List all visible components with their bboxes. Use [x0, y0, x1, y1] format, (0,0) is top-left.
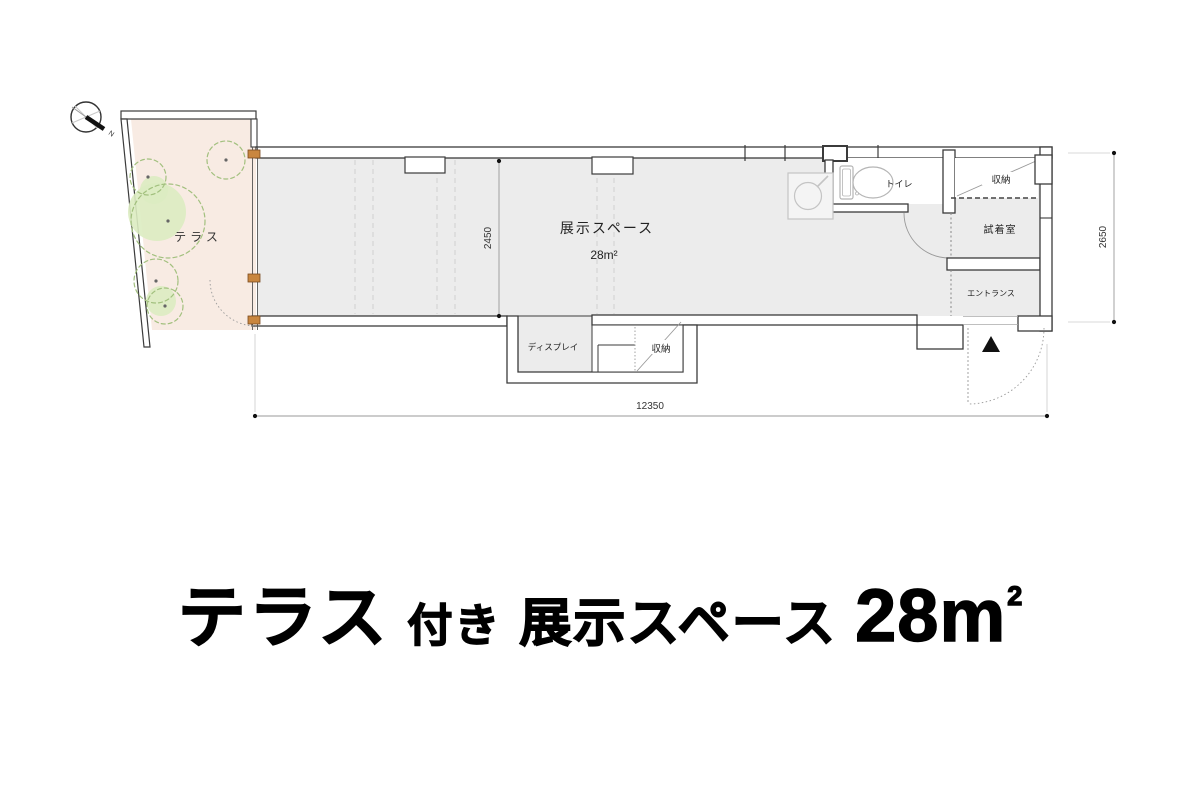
- dimension-right-depth-value: 2650: [1098, 225, 1109, 248]
- right-wall-post: [1035, 155, 1052, 184]
- terrace-top-wall: [121, 111, 256, 119]
- entrance-corner-wall: [1018, 316, 1052, 331]
- caption-title: テラス 付き 展示スペース 28m2: [0, 562, 1200, 661]
- terrace-label: テラス: [174, 230, 222, 244]
- tree-trunk-dot: [166, 219, 169, 222]
- display-label: ディスプレイ: [528, 342, 578, 352]
- entry-step: [917, 325, 963, 349]
- dimension-width-value: 12350: [636, 401, 664, 412]
- tree-trunk-dot: [154, 279, 157, 282]
- wood-post: [248, 274, 260, 282]
- entrance-arrow-icon: [982, 336, 1000, 352]
- floor-plan-page: テラス トイレ: [0, 0, 1200, 800]
- sink-icon: [788, 173, 833, 219]
- dimension-depth-value: 2450: [483, 226, 494, 249]
- wood-post: [248, 150, 260, 158]
- wall-pillar-notch: [405, 157, 445, 173]
- caption-space: 展示スペース: [519, 581, 837, 656]
- caption-terrace: テラス: [178, 562, 390, 661]
- storage-top-label: 収納: [991, 174, 1010, 186]
- exhibition-area-label: 28m²: [590, 248, 617, 262]
- toilet-bottom-wall: [825, 204, 908, 212]
- storage-bottom-room: 収納: [592, 322, 683, 372]
- caption-area-sup: 2: [1007, 581, 1022, 612]
- caption-area-value: 28m: [855, 573, 1006, 658]
- toilet-right-wall: [943, 150, 955, 213]
- dimension-right-depth: 2650: [1068, 151, 1116, 324]
- toilet-label: トイレ: [885, 179, 912, 189]
- exhibition-label: 展示スペース: [560, 220, 654, 236]
- tree-canopy: [146, 286, 176, 316]
- caption-area: 28m2: [855, 573, 1022, 658]
- tree-trunk-dot: [163, 304, 166, 307]
- compass-north-label: N: [107, 130, 115, 139]
- fitting-room-label: 試着室: [984, 223, 1017, 236]
- floor-plan: テラス トイレ: [0, 0, 1200, 470]
- tree-trunk-dot: [224, 158, 227, 161]
- storage-top-room: 収納: [951, 158, 1038, 198]
- compass-icon: N: [71, 102, 115, 139]
- wall-pillar-notch: [592, 157, 633, 174]
- terrace-wall-connector: [251, 119, 257, 147]
- tree-trunk-dot: [146, 175, 149, 178]
- storage-bottom-label: 収納: [651, 343, 670, 355]
- entrance-top-wall: [947, 258, 1040, 270]
- caption-suffix: 付き: [407, 589, 501, 654]
- toilet-corner-post: [823, 146, 847, 161]
- wood-post: [248, 316, 260, 324]
- entrance-label: エントランス: [967, 289, 1015, 298]
- entrance-door-arc: [968, 328, 1044, 404]
